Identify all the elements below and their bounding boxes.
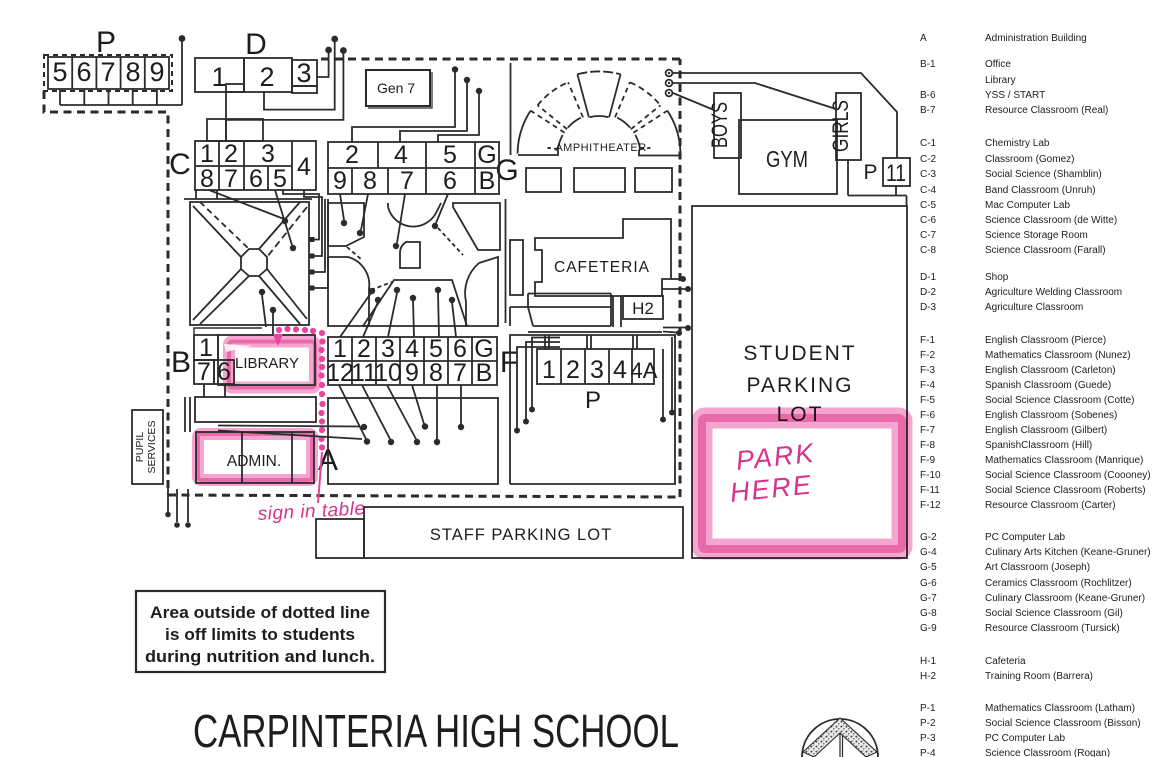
svg-text:B-6: B-6 xyxy=(920,90,936,101)
svg-text:CARPINTERIA HIGH SCHOOL: CARPINTERIA HIGH SCHOOL xyxy=(193,705,679,757)
svg-text:9: 9 xyxy=(333,167,347,195)
svg-text:SERVICES: SERVICES xyxy=(146,421,158,474)
svg-text:1: 1 xyxy=(542,356,556,384)
svg-text:F-6: F-6 xyxy=(920,410,935,421)
svg-text:8: 8 xyxy=(125,57,140,87)
svg-text:P-3: P-3 xyxy=(920,733,936,744)
svg-text:PC Computer Lab: PC Computer Lab xyxy=(985,733,1065,744)
svg-text:LIBRARY: LIBRARY xyxy=(235,355,299,372)
svg-text:8: 8 xyxy=(200,165,214,193)
svg-text:P-4: P-4 xyxy=(920,748,936,757)
svg-text:Spanish Classroom (Guede): Spanish Classroom (Guede) xyxy=(985,380,1111,391)
svg-text:Shop: Shop xyxy=(985,272,1009,283)
svg-text:2: 2 xyxy=(345,141,359,169)
svg-text:Cafeteria: Cafeteria xyxy=(985,656,1026,667)
svg-text:4: 4 xyxy=(613,356,627,384)
svg-text:Training Room (Barrera): Training Room (Barrera) xyxy=(985,671,1093,682)
svg-text:5: 5 xyxy=(273,165,287,193)
svg-text:2: 2 xyxy=(224,140,238,168)
svg-text:Science Storage Room: Science Storage Room xyxy=(985,230,1088,241)
svg-text:Resource Classroom (Real): Resource Classroom (Real) xyxy=(985,105,1108,116)
svg-text:12: 12 xyxy=(326,359,354,387)
svg-text:C-3: C-3 xyxy=(920,169,937,180)
svg-text:G-2: G-2 xyxy=(920,532,937,543)
svg-text:1: 1 xyxy=(200,140,214,168)
svg-text:Classroom (Gomez): Classroom (Gomez) xyxy=(985,154,1074,165)
svg-text:GYM: GYM xyxy=(766,146,808,172)
svg-text:6: 6 xyxy=(443,167,457,195)
svg-text:F-3: F-3 xyxy=(920,365,935,376)
svg-text:CAFETERIA: CAFETERIA xyxy=(554,259,650,276)
svg-text:C-6: C-6 xyxy=(920,215,937,226)
svg-text:F-4: F-4 xyxy=(920,380,935,391)
svg-text:Science Classroom (Rogan): Science Classroom (Rogan) xyxy=(985,748,1110,757)
svg-text:Resource Classroom (Tursick): Resource Classroom (Tursick) xyxy=(985,623,1120,634)
svg-text:English Classroom (Sobenes): English Classroom (Sobenes) xyxy=(985,410,1117,421)
svg-text:F-7: F-7 xyxy=(920,425,935,436)
svg-text:G-6: G-6 xyxy=(920,578,937,589)
svg-text:A: A xyxy=(920,33,927,44)
svg-text:C-5: C-5 xyxy=(920,200,937,211)
svg-text:Mathematics Classroom (Latham): Mathematics Classroom (Latham) xyxy=(985,703,1135,714)
svg-text:C-8: C-8 xyxy=(920,245,937,256)
svg-text:Agriculture Classroom: Agriculture Classroom xyxy=(985,302,1083,313)
svg-text:Mathematics Classroom (Nunez): Mathematics Classroom (Nunez) xyxy=(985,350,1131,361)
svg-text:Social Science Classroom (Cott: Social Science Classroom (Cotte) xyxy=(985,395,1135,406)
svg-text:D: D xyxy=(245,28,267,61)
svg-text:F-8: F-8 xyxy=(920,440,935,451)
svg-text:B: B xyxy=(171,346,191,379)
svg-text:6: 6 xyxy=(217,358,231,386)
svg-text:4: 4 xyxy=(297,153,311,181)
svg-text:Agriculture Welding Classroom: Agriculture Welding Classroom xyxy=(985,287,1122,298)
svg-text:Mac Computer Lab: Mac Computer Lab xyxy=(985,200,1070,211)
svg-text:7: 7 xyxy=(197,358,211,386)
svg-text:8: 8 xyxy=(429,359,443,387)
svg-text:AMPHITHEATER: AMPHITHEATER xyxy=(555,142,646,154)
svg-text:G-8: G-8 xyxy=(920,608,937,619)
svg-text:5: 5 xyxy=(52,57,67,87)
svg-text:YSS / START: YSS / START xyxy=(985,90,1045,101)
svg-text:Social Science (Shamblin): Social Science (Shamblin) xyxy=(985,169,1102,180)
svg-text:B-7: B-7 xyxy=(920,105,936,116)
svg-text:Gen 7: Gen 7 xyxy=(377,80,415,96)
svg-text:P: P xyxy=(863,161,877,184)
svg-text:C-4: C-4 xyxy=(920,185,937,196)
svg-text:F: F xyxy=(500,346,518,379)
svg-text:3: 3 xyxy=(296,58,311,88)
svg-text:B: B xyxy=(476,359,493,387)
svg-text:6: 6 xyxy=(76,57,91,87)
svg-text:7: 7 xyxy=(400,167,414,195)
svg-text:3: 3 xyxy=(590,356,604,384)
svg-text:D-2: D-2 xyxy=(920,287,937,298)
svg-text:Social Science Classroom (Robe: Social Science Classroom (Roberts) xyxy=(985,485,1146,496)
svg-text:2: 2 xyxy=(566,356,580,384)
svg-text:Art Classroom (Joseph): Art Classroom (Joseph) xyxy=(985,562,1090,573)
svg-text:H-2: H-2 xyxy=(920,671,937,682)
svg-text:PARKING: PARKING xyxy=(747,374,854,397)
svg-text:Culinary Arts Kitchen (Keane-G: Culinary Arts Kitchen (Keane-Gruner) xyxy=(985,547,1151,558)
svg-text:F-11: F-11 xyxy=(920,485,940,496)
svg-text:C: C xyxy=(169,148,191,181)
svg-text:9: 9 xyxy=(405,359,419,387)
svg-text:H-1: H-1 xyxy=(920,656,937,667)
svg-text:1: 1 xyxy=(211,62,226,92)
svg-text:5: 5 xyxy=(443,141,457,169)
svg-text:G-7: G-7 xyxy=(920,593,937,604)
svg-text:F-12: F-12 xyxy=(920,500,941,511)
svg-text:ADMIN.: ADMIN. xyxy=(227,453,281,470)
svg-text:Social Science Classroom (Gil): Social Science Classroom (Gil) xyxy=(985,608,1123,619)
svg-text:P-2: P-2 xyxy=(920,718,936,729)
svg-text:Science Classroom (Farall): Science Classroom (Farall) xyxy=(985,245,1106,256)
svg-text:9: 9 xyxy=(149,57,164,87)
svg-text:Chemistry Lab: Chemistry Lab xyxy=(985,138,1050,149)
svg-text:SpanishClassroom (Hill): SpanishClassroom (Hill) xyxy=(985,440,1092,451)
svg-text:11: 11 xyxy=(351,359,377,387)
svg-text:4A: 4A xyxy=(631,358,658,383)
svg-text:C-2: C-2 xyxy=(920,154,937,165)
svg-text:Administration Building: Administration Building xyxy=(985,33,1087,44)
svg-text:11: 11 xyxy=(886,160,906,187)
svg-text:Library: Library xyxy=(985,75,1016,86)
svg-text:P-1: P-1 xyxy=(920,703,936,714)
svg-text:D-3: D-3 xyxy=(920,302,937,313)
svg-text:B-1: B-1 xyxy=(920,59,936,70)
svg-text:Science Classroom (de Witte): Science Classroom (de Witte) xyxy=(985,215,1117,226)
svg-text:7: 7 xyxy=(100,57,115,87)
svg-text:PC Computer Lab: PC Computer Lab xyxy=(985,532,1065,543)
svg-text:7: 7 xyxy=(224,165,238,193)
svg-text:G-9: G-9 xyxy=(920,623,937,634)
svg-text:G-4: G-4 xyxy=(920,547,937,558)
svg-text:P: P xyxy=(585,387,601,414)
svg-text:10: 10 xyxy=(374,359,402,387)
svg-text:F-10: F-10 xyxy=(920,470,941,481)
svg-text:PUPIL: PUPIL xyxy=(134,432,146,463)
svg-text:2: 2 xyxy=(259,62,274,92)
svg-text:Culinary Classroom (Keane-Grun: Culinary Classroom (Keane-Gruner) xyxy=(985,593,1145,604)
svg-text:during nutrition and lunch.: during nutrition and lunch. xyxy=(145,647,375,666)
svg-text:Social Science Classroom (Biss: Social Science Classroom (Bisson) xyxy=(985,718,1141,729)
svg-text:Area outside of dotted line: Area outside of dotted line xyxy=(150,603,370,622)
svg-text:B: B xyxy=(479,167,496,195)
svg-text:6: 6 xyxy=(249,165,263,193)
svg-text:F-1: F-1 xyxy=(920,335,935,346)
svg-text:Resource Classroom (Carter): Resource Classroom (Carter) xyxy=(985,500,1116,511)
svg-text:C-1: C-1 xyxy=(920,138,937,149)
svg-text:F-5: F-5 xyxy=(920,395,935,406)
svg-text:English Classroom (Carleton): English Classroom (Carleton) xyxy=(985,365,1116,376)
svg-text:F-2: F-2 xyxy=(920,350,935,361)
svg-text:7: 7 xyxy=(453,359,467,387)
svg-text:STAFF PARKING LOT: STAFF PARKING LOT xyxy=(430,526,612,544)
svg-text:English Classroom (Gilbert): English Classroom (Gilbert) xyxy=(985,425,1107,436)
svg-text:D-1: D-1 xyxy=(920,272,937,283)
svg-text:Band Classroom (Unruh): Band Classroom (Unruh) xyxy=(985,185,1096,196)
svg-text:F-9: F-9 xyxy=(920,455,935,466)
svg-text:is off limits to students: is off limits to students xyxy=(165,625,355,644)
svg-text:C-7: C-7 xyxy=(920,230,937,241)
svg-text:Office: Office xyxy=(985,59,1011,70)
svg-text:4: 4 xyxy=(394,141,408,169)
svg-text:3: 3 xyxy=(261,140,275,168)
svg-text:Social Science Classroom (Cooo: Social Science Classroom (Coooney) xyxy=(985,470,1151,481)
svg-text:8: 8 xyxy=(363,167,377,195)
svg-text:G: G xyxy=(477,141,496,169)
svg-text:Ceramics Classroom (Rochlitzer: Ceramics Classroom (Rochlitzer) xyxy=(985,578,1132,589)
svg-text:STUDENT: STUDENT xyxy=(743,342,856,365)
svg-text:G-5: G-5 xyxy=(920,562,937,573)
svg-text:English Classroom (Pierce): English Classroom (Pierce) xyxy=(985,335,1106,346)
svg-text:H2: H2 xyxy=(632,299,654,318)
svg-text:Mathematics Classroom (Manriqu: Mathematics Classroom (Manrique) xyxy=(985,455,1143,466)
